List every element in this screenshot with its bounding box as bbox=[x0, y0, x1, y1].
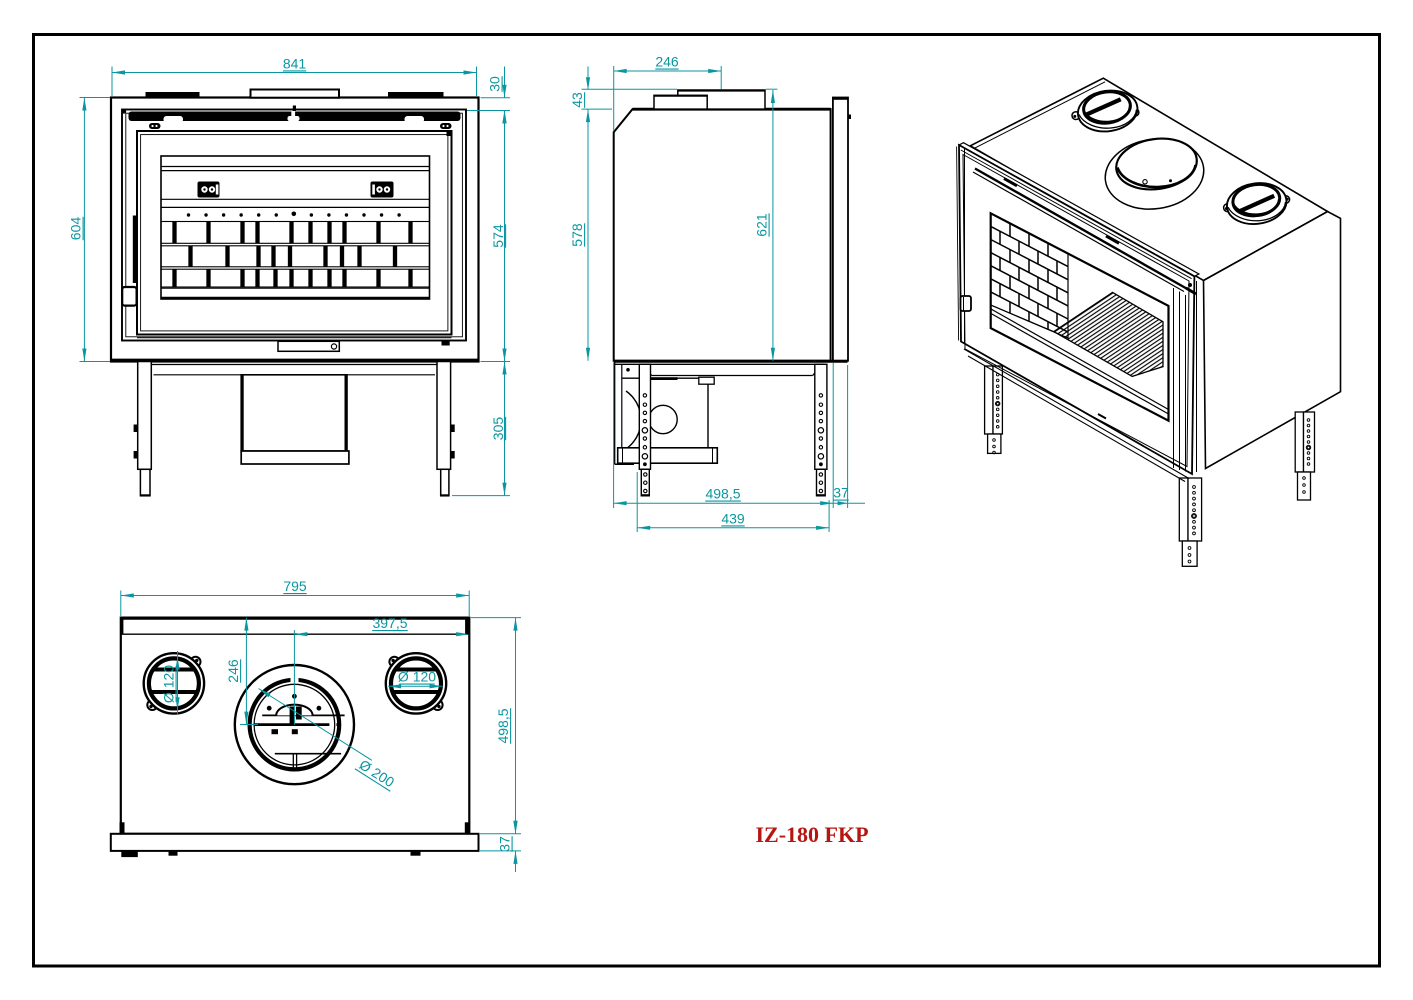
svg-text:Ø 120: Ø 120 bbox=[161, 665, 177, 703]
svg-text:795: 795 bbox=[283, 578, 307, 594]
svg-text:37: 37 bbox=[497, 836, 513, 852]
svg-text:397,5: 397,5 bbox=[372, 615, 407, 631]
svg-text:IZ-180 FKP: IZ-180 FKP bbox=[755, 822, 868, 847]
svg-text:37: 37 bbox=[833, 485, 849, 501]
svg-text:498,5: 498,5 bbox=[495, 708, 511, 743]
svg-text:246: 246 bbox=[225, 659, 241, 683]
svg-text:498,5: 498,5 bbox=[705, 486, 740, 502]
svg-text:574: 574 bbox=[490, 224, 506, 248]
svg-text:30: 30 bbox=[487, 76, 503, 92]
svg-text:43: 43 bbox=[569, 92, 585, 108]
svg-text:439: 439 bbox=[721, 510, 745, 526]
svg-text:246: 246 bbox=[655, 54, 679, 70]
svg-text:578: 578 bbox=[569, 223, 585, 247]
svg-text:841: 841 bbox=[283, 55, 307, 71]
svg-text:Ø 120: Ø 120 bbox=[398, 669, 436, 685]
svg-text:604: 604 bbox=[68, 217, 84, 241]
svg-text:305: 305 bbox=[490, 417, 506, 441]
svg-text:621: 621 bbox=[754, 213, 770, 237]
